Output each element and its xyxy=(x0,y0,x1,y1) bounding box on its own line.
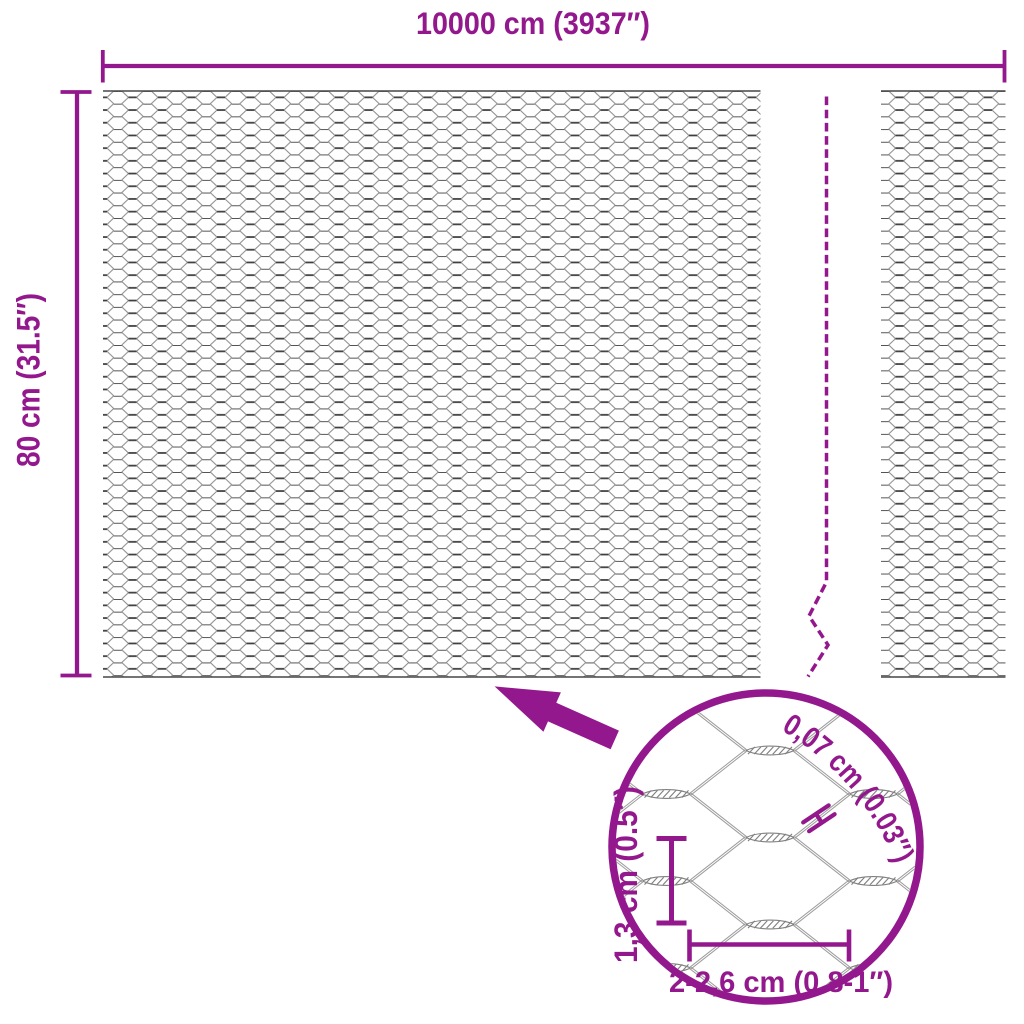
svg-text:10000 cm (3937″): 10000 cm (3937″) xyxy=(416,5,650,41)
svg-text:80 cm (31.5″): 80 cm (31.5″) xyxy=(11,293,47,467)
svg-text:1,3 cm (0.5″): 1,3 cm (0.5″) xyxy=(608,786,644,963)
svg-text:2-2,6 cm (0.8-1″): 2-2,6 cm (0.8-1″) xyxy=(669,966,893,999)
